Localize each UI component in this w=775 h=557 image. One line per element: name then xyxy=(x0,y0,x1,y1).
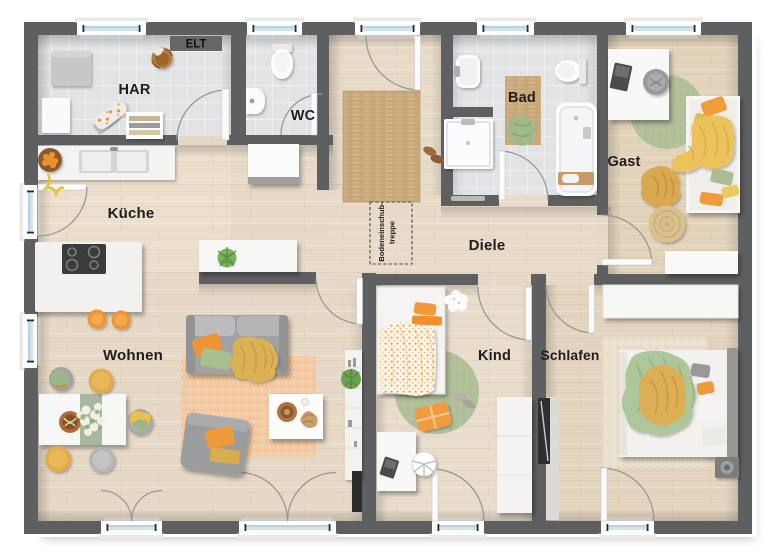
svg-text:WC: WC xyxy=(291,108,316,124)
svg-text:Wohnen: Wohnen xyxy=(103,347,163,364)
svg-text:HAR: HAR xyxy=(118,82,150,98)
svg-text:treppe: treppe xyxy=(388,221,397,244)
svg-text:Küche: Küche xyxy=(108,205,155,222)
svg-text:Bodeneinschub-: Bodeneinschub- xyxy=(377,202,386,262)
svg-text:Gast: Gast xyxy=(607,154,640,170)
svg-text:ELT: ELT xyxy=(186,39,207,51)
svg-text:Schlafen: Schlafen xyxy=(540,348,599,363)
svg-text:Kind: Kind xyxy=(478,348,511,364)
svg-text:Bad: Bad xyxy=(508,90,536,106)
svg-text:Diele: Diele xyxy=(469,237,506,254)
